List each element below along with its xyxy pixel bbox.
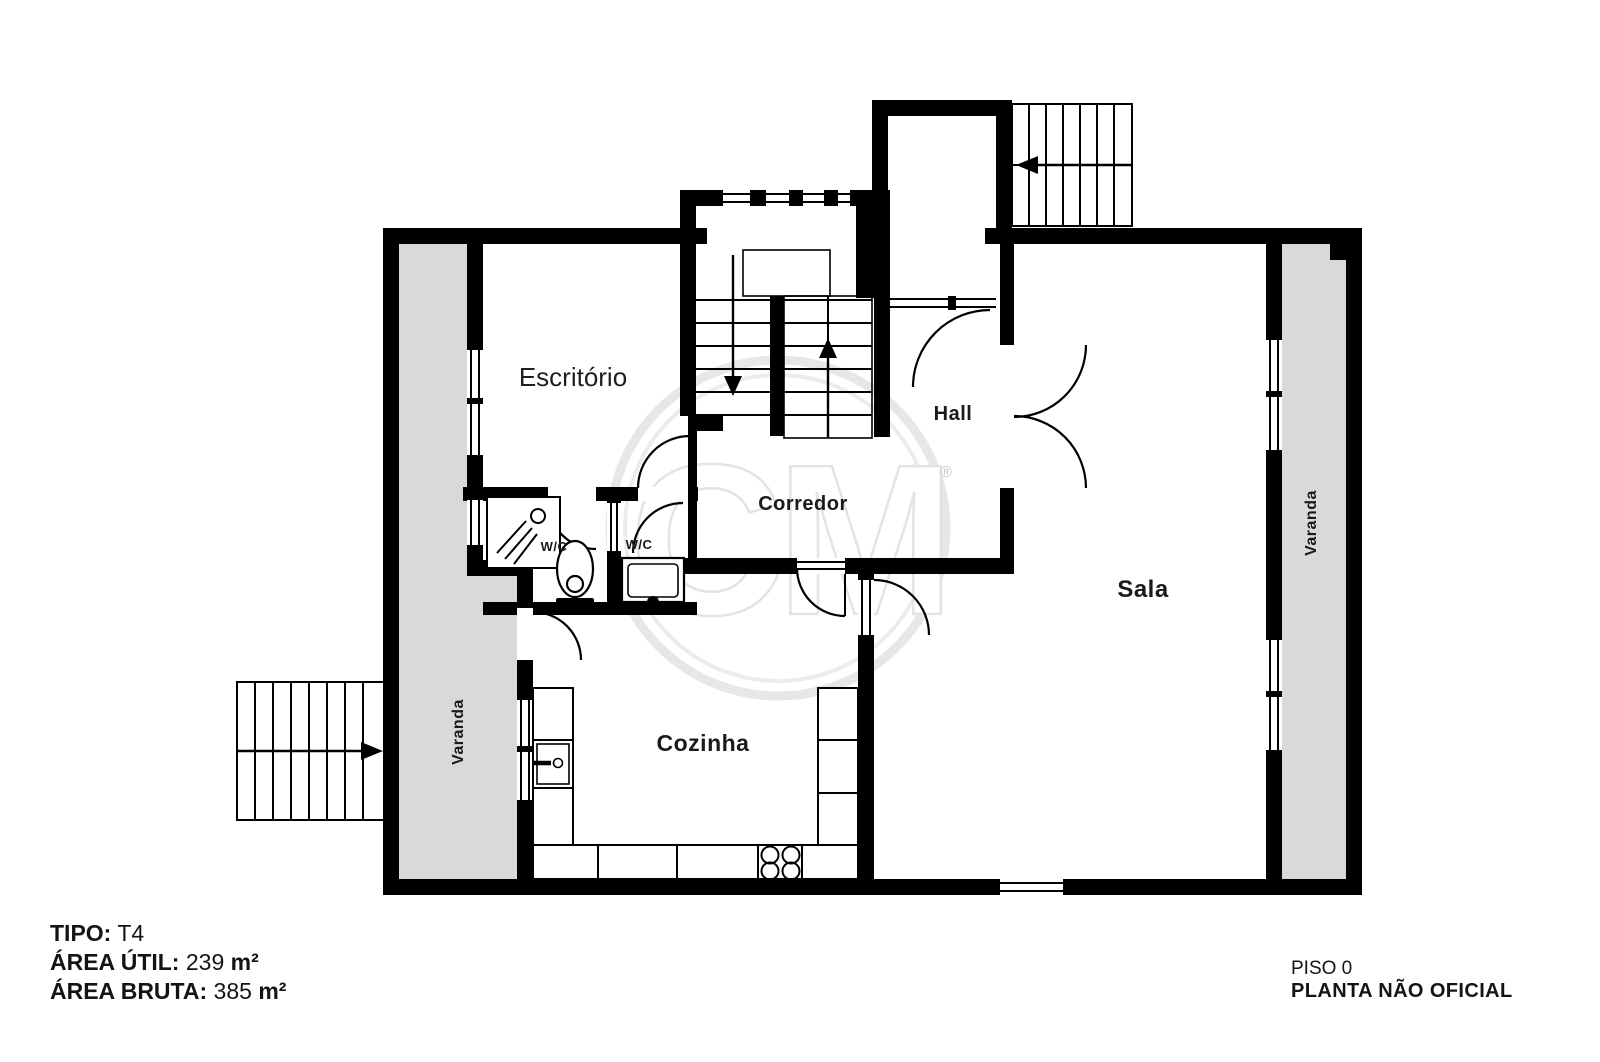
info-line-area-bruta: ÁREA BRUTA: 385 m²	[50, 977, 286, 1006]
wall-stairwell-left	[680, 206, 696, 416]
garden-arrow-right-icon	[361, 742, 383, 760]
wall-outer-bottom	[383, 879, 1362, 895]
opening-wc-divider-door	[607, 503, 621, 551]
window-mullion	[824, 190, 838, 206]
floor-plan-drawing: CM ®	[0, 0, 1600, 1062]
opening-kitchen-door	[797, 558, 845, 574]
main-staircase	[696, 250, 872, 438]
label-wc-right: W/C	[626, 537, 653, 552]
wall-sala-top	[985, 228, 1362, 244]
wall-vestibule-right	[996, 100, 1012, 244]
area-util-label: ÁREA ÚTIL:	[50, 949, 179, 975]
window-mullion	[1266, 691, 1282, 697]
wall-stair-spine-foot	[770, 413, 784, 436]
opening-balcony-kitchen-door	[517, 608, 533, 660]
stair-landing-outline	[743, 250, 830, 296]
door-balcony-kitchen-swing	[533, 612, 581, 660]
label-corredor: Corredor	[758, 493, 848, 515]
stair-arrow-up-icon	[819, 338, 837, 358]
area-bruta-label: ÁREA BRUTA:	[50, 978, 207, 1004]
balcony-right-notch	[1330, 244, 1346, 260]
entrance-arrow-left-icon	[1016, 156, 1038, 174]
plan-footer: PISO 0 PLANTA NÃO OFICIAL	[1291, 958, 1513, 1002]
kitchen-counter-right	[818, 688, 858, 845]
kitchen-counter-bottom	[533, 845, 858, 879]
wall-stairwell-right-upper	[856, 206, 890, 298]
window-mullion	[789, 190, 803, 206]
floor-plan-page: CM ®	[0, 0, 1600, 1062]
door-hall-sala-upper-swing	[1014, 345, 1086, 417]
label-wc-left: W/C	[541, 539, 568, 554]
watermark-logo-text: CM	[629, 419, 947, 660]
wall-hall-sala-upper	[1000, 244, 1014, 345]
label-cozinha: Cozinha	[657, 730, 750, 756]
wall-hall-left	[874, 296, 890, 437]
wall-outer-right	[1346, 228, 1362, 895]
label-varanda-right: Varanda	[1303, 490, 1320, 556]
tipo-label: TIPO:	[50, 920, 111, 946]
garden-stairs	[237, 682, 385, 820]
property-info: TIPO: T4 ÁREA ÚTIL: 239 m² ÁREA BRUTA: 3…	[50, 919, 286, 1006]
label-hall: Hall	[934, 403, 973, 425]
opening-hall-sala-doors	[1000, 345, 1014, 488]
label-escritorio: Escritório	[519, 362, 627, 392]
window-mullion	[517, 746, 533, 752]
window-mullion	[467, 398, 483, 404]
registered-trademark-icon: ®	[940, 464, 952, 481]
area-util-unit: m²	[231, 949, 259, 975]
shower-icon	[487, 497, 560, 568]
window-sala-bottom-glass	[1000, 879, 1063, 895]
opening-office-door	[638, 487, 688, 501]
opening-kitchen-sala-door	[858, 580, 874, 635]
door-hall-sala-lower-swing	[1014, 416, 1086, 488]
window-wc-glass	[467, 500, 483, 545]
area-bruta-unit: m²	[258, 978, 286, 1004]
tipo-value: T4	[117, 920, 144, 946]
balcony-right-floor	[1282, 244, 1346, 879]
wall-sala-balcony	[1266, 244, 1282, 879]
label-varanda-left: Varanda	[450, 699, 467, 765]
area-util-value: 239	[186, 949, 224, 975]
floor-indicator: PISO 0	[1291, 958, 1513, 980]
window-mullion	[1266, 391, 1282, 397]
kitchen-fixtures	[533, 688, 858, 880]
wall-kitchen-top	[684, 558, 1014, 574]
sink-icon	[622, 558, 684, 602]
info-line-tipo: TIPO: T4	[50, 919, 286, 948]
door-entrance-swing	[913, 310, 990, 387]
wall-vestibule-top	[872, 100, 1012, 116]
area-bruta-value: 385	[214, 978, 252, 1004]
wall-top-left	[383, 228, 707, 244]
entrance-stairs	[1012, 104, 1132, 226]
window-mullion	[750, 190, 766, 206]
disclaimer-text: PLANTA NÃO OFICIAL	[1291, 980, 1513, 1002]
label-sala: Sala	[1117, 576, 1169, 603]
wall-hall-sala-lower	[1000, 488, 1014, 568]
info-line-area-util: ÁREA ÚTIL: 239 m²	[50, 948, 286, 977]
threshold-post	[948, 296, 956, 310]
